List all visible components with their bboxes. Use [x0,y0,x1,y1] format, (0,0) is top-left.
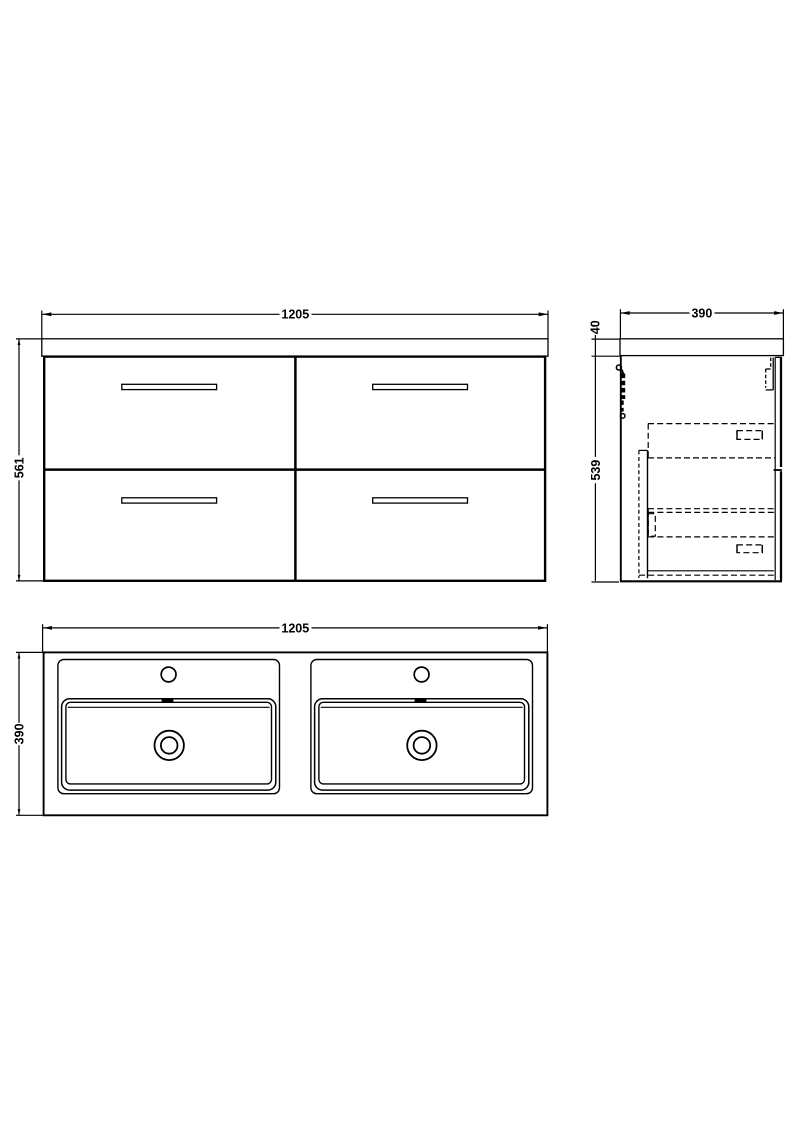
svg-text:1205: 1205 [281,308,309,322]
svg-text:390: 390 [13,723,27,744]
svg-text:1205: 1205 [281,621,309,635]
svg-text:40: 40 [588,320,602,334]
svg-text:539: 539 [589,460,603,481]
svg-text:390: 390 [691,306,712,320]
svg-text:561: 561 [13,457,27,478]
